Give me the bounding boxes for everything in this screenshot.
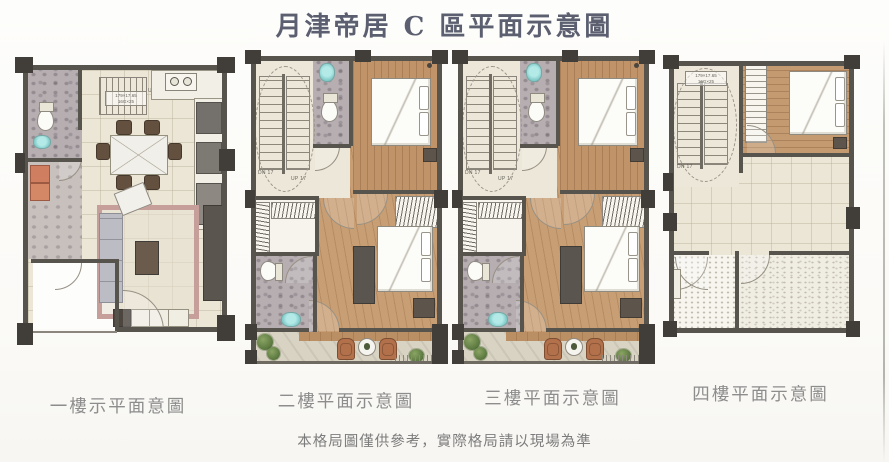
wall — [522, 196, 526, 256]
stair-dn-label: DN 17 — [677, 165, 693, 170]
wall — [458, 56, 649, 61]
floor-4-plan: 179×17.65 16G×25 DN 17 — [663, 55, 860, 347]
balcony-edge — [458, 361, 649, 364]
column — [217, 315, 235, 341]
column — [15, 153, 25, 173]
patio-chair — [544, 338, 562, 360]
column — [663, 213, 677, 231]
toilet — [321, 100, 338, 122]
wall — [546, 328, 649, 332]
dresser — [413, 298, 435, 318]
column — [844, 55, 860, 69]
wall — [23, 65, 227, 70]
column — [17, 323, 33, 345]
column — [15, 57, 33, 73]
pillow — [419, 86, 429, 110]
wall — [349, 58, 353, 146]
pillow — [626, 86, 636, 110]
column — [846, 207, 860, 229]
pillow — [421, 232, 431, 256]
column — [432, 324, 448, 364]
wall — [251, 328, 309, 332]
stair-dn-label: DN 17 — [258, 171, 274, 176]
wall — [437, 56, 442, 364]
stair-up-label: UP 17 — [498, 177, 513, 182]
tv-wall-unit — [203, 205, 224, 301]
wall — [669, 251, 709, 255]
column — [452, 350, 464, 364]
dining-chair — [144, 175, 160, 190]
column — [846, 321, 860, 337]
nightstand — [423, 148, 437, 162]
wall — [253, 196, 319, 200]
wall — [31, 259, 119, 263]
floor-2-label: 二樓平面示意圖 — [266, 388, 426, 413]
stair-spec-line2: 16G×25 — [107, 99, 145, 105]
wall — [313, 144, 351, 148]
wall — [769, 251, 854, 255]
toilet — [37, 109, 54, 131]
disclaimer-text: 本格局圖僅供參考，實際格局請以現場為準 — [0, 430, 889, 451]
stair-spec: 179×17.65 16G×25 — [685, 71, 727, 86]
stove-icon — [165, 73, 197, 91]
dining-chair — [168, 143, 182, 160]
wall — [460, 196, 526, 200]
wall — [669, 61, 674, 333]
column — [663, 173, 673, 191]
nightstand — [833, 137, 847, 149]
sink — [281, 312, 301, 327]
patio-chair — [337, 338, 355, 360]
pillow — [419, 112, 429, 136]
column — [663, 55, 679, 69]
wall — [560, 190, 646, 194]
column — [217, 57, 235, 73]
nightstand — [630, 148, 644, 162]
wall — [253, 252, 317, 256]
stair-spec: 179×17.65 16G×25 — [105, 91, 147, 106]
coffee-table — [135, 241, 159, 275]
wall — [556, 58, 560, 146]
dining-chair — [96, 143, 110, 160]
sink — [526, 63, 542, 82]
sink — [33, 135, 51, 149]
porch-edge — [31, 331, 117, 333]
wall — [520, 252, 524, 332]
floor-1-label: 一樓示平面意圖 — [38, 393, 198, 418]
wall — [644, 56, 649, 364]
fridge — [196, 102, 222, 134]
stair-dn-label: DN 17 — [465, 171, 481, 176]
column — [219, 149, 235, 171]
wall — [669, 328, 854, 333]
toilet — [260, 261, 278, 281]
wall — [28, 158, 82, 162]
floor1-cabinet-orange — [30, 183, 50, 201]
floor-1-plan: 179×17.65 16G×25 UP 17 — [15, 57, 235, 357]
floor-3-plan: DN 17 UP 17 — [452, 50, 655, 375]
floor-3-label: 三樓平面示意圖 — [470, 385, 635, 410]
wall — [115, 259, 119, 332]
closet-hangers — [602, 196, 646, 228]
bush-plant — [474, 347, 487, 360]
wall — [458, 56, 463, 364]
closet-hangers — [478, 202, 524, 219]
column — [432, 50, 448, 64]
bush-plant — [267, 347, 280, 360]
wall — [520, 144, 558, 148]
column — [245, 350, 257, 364]
column — [355, 50, 371, 62]
patio-table — [565, 338, 583, 356]
pillow — [628, 232, 638, 256]
wall — [735, 251, 739, 333]
dresser — [620, 298, 642, 318]
dining-chair — [144, 120, 160, 135]
stair-up-label: UP 17 — [291, 177, 306, 182]
column — [452, 190, 462, 208]
patio-table — [358, 338, 376, 356]
wall — [115, 327, 227, 332]
tv-cabinet — [353, 246, 375, 304]
wall — [849, 61, 854, 333]
pillow — [835, 103, 845, 127]
column — [562, 50, 578, 62]
pillow — [835, 77, 845, 101]
balcony-edge — [251, 361, 442, 364]
pillow — [421, 258, 431, 282]
toilet — [467, 261, 485, 281]
wall — [669, 61, 854, 66]
wall — [460, 252, 524, 256]
dining-chair — [116, 120, 132, 135]
column — [245, 190, 255, 208]
wall — [458, 328, 516, 332]
tv-cabinet — [560, 246, 582, 304]
page-fold-line — [883, 40, 885, 462]
column — [434, 190, 448, 208]
column — [641, 190, 655, 208]
floor-4-label: 四樓平面示意圖 — [678, 381, 843, 406]
column — [245, 324, 257, 340]
wall — [78, 70, 82, 130]
wall — [251, 56, 256, 364]
wall — [339, 328, 442, 332]
sink — [488, 312, 508, 327]
column — [452, 324, 464, 340]
pillow — [628, 258, 638, 282]
column — [452, 50, 468, 64]
floor-2-plan: DN 17 UP 17 — [245, 50, 448, 375]
wall — [23, 65, 28, 335]
burner-icon — [170, 77, 179, 86]
wall — [222, 65, 227, 331]
burner-icon — [183, 77, 192, 86]
toilet — [528, 100, 545, 122]
column — [663, 321, 677, 337]
sofa — [99, 213, 123, 303]
page-title: 月津帝居 C 區平面示意圖 — [0, 6, 889, 43]
dining-table — [110, 135, 168, 175]
closet-hangers — [271, 202, 317, 219]
column — [245, 50, 261, 64]
closet-hangers — [395, 196, 439, 228]
floorplan-sheet: 月津帝居 C 區平面示意圖 179×17.65 16G×25 UP 17 — [0, 0, 889, 462]
sink — [319, 63, 335, 82]
pillow — [626, 112, 636, 136]
wall — [313, 252, 317, 332]
wall — [743, 153, 852, 157]
floor1-cabinet-orange — [30, 165, 50, 183]
column — [639, 50, 655, 64]
stair-spec-line2: 16G×25 — [687, 79, 725, 85]
wall — [353, 190, 439, 194]
wall — [251, 56, 442, 61]
wall — [315, 196, 319, 256]
column — [639, 324, 655, 364]
